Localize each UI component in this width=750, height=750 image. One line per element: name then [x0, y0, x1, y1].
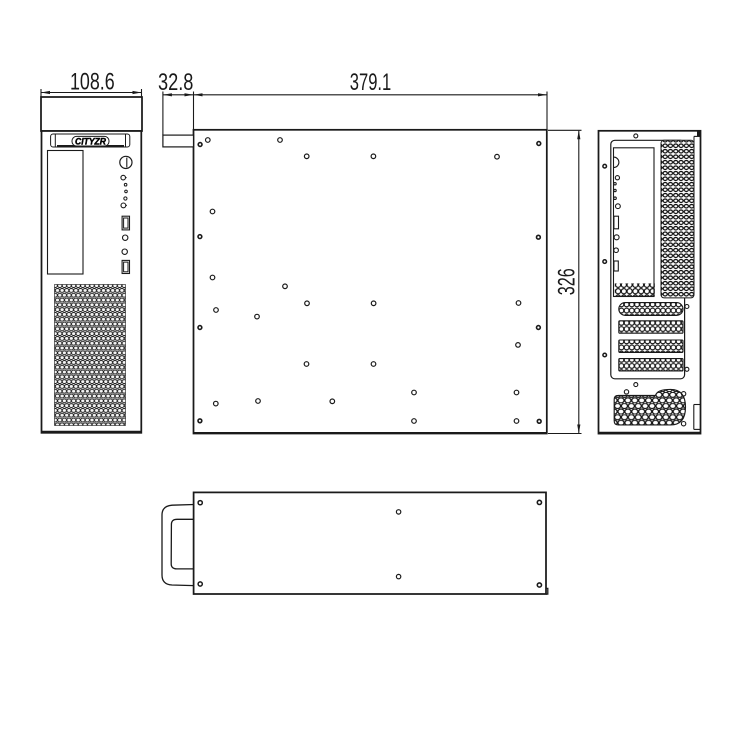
svg-text:108.6: 108.6 [70, 69, 115, 96]
svg-text:326: 326 [554, 268, 581, 295]
svg-text:32.8: 32.8 [158, 69, 193, 96]
svg-text:CITYZR: CITYZR [75, 136, 106, 146]
svg-text:379.1: 379.1 [350, 69, 391, 96]
